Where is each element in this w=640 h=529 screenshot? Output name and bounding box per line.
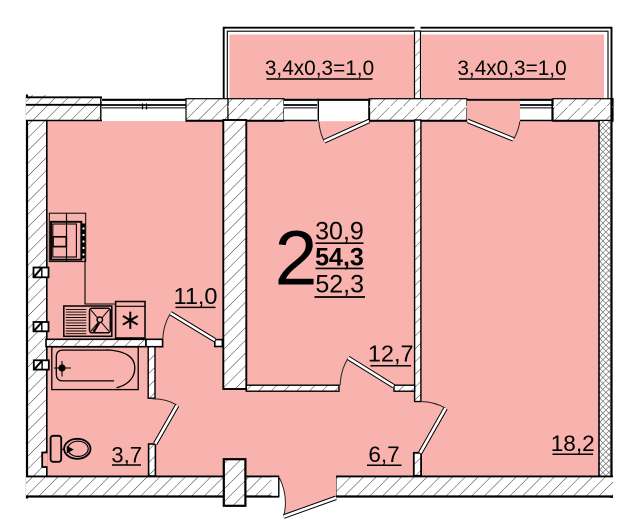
svg-text:12,7: 12,7 [368,340,414,366]
svg-text:11,0: 11,0 [174,283,218,309]
svg-text:30,9: 30,9 [315,218,364,246]
svg-text:3,7: 3,7 [111,443,142,468]
svg-text:2: 2 [275,216,318,302]
svg-text:54,3: 54,3 [315,244,364,272]
svg-text:6,7: 6,7 [368,442,399,467]
svg-text:52,3: 52,3 [315,271,364,299]
svg-text:3,4x0,3=1,0: 3,4x0,3=1,0 [265,57,374,80]
svg-text:3,4x0,3=1,0: 3,4x0,3=1,0 [457,57,566,80]
svg-text:18,2: 18,2 [551,431,595,456]
